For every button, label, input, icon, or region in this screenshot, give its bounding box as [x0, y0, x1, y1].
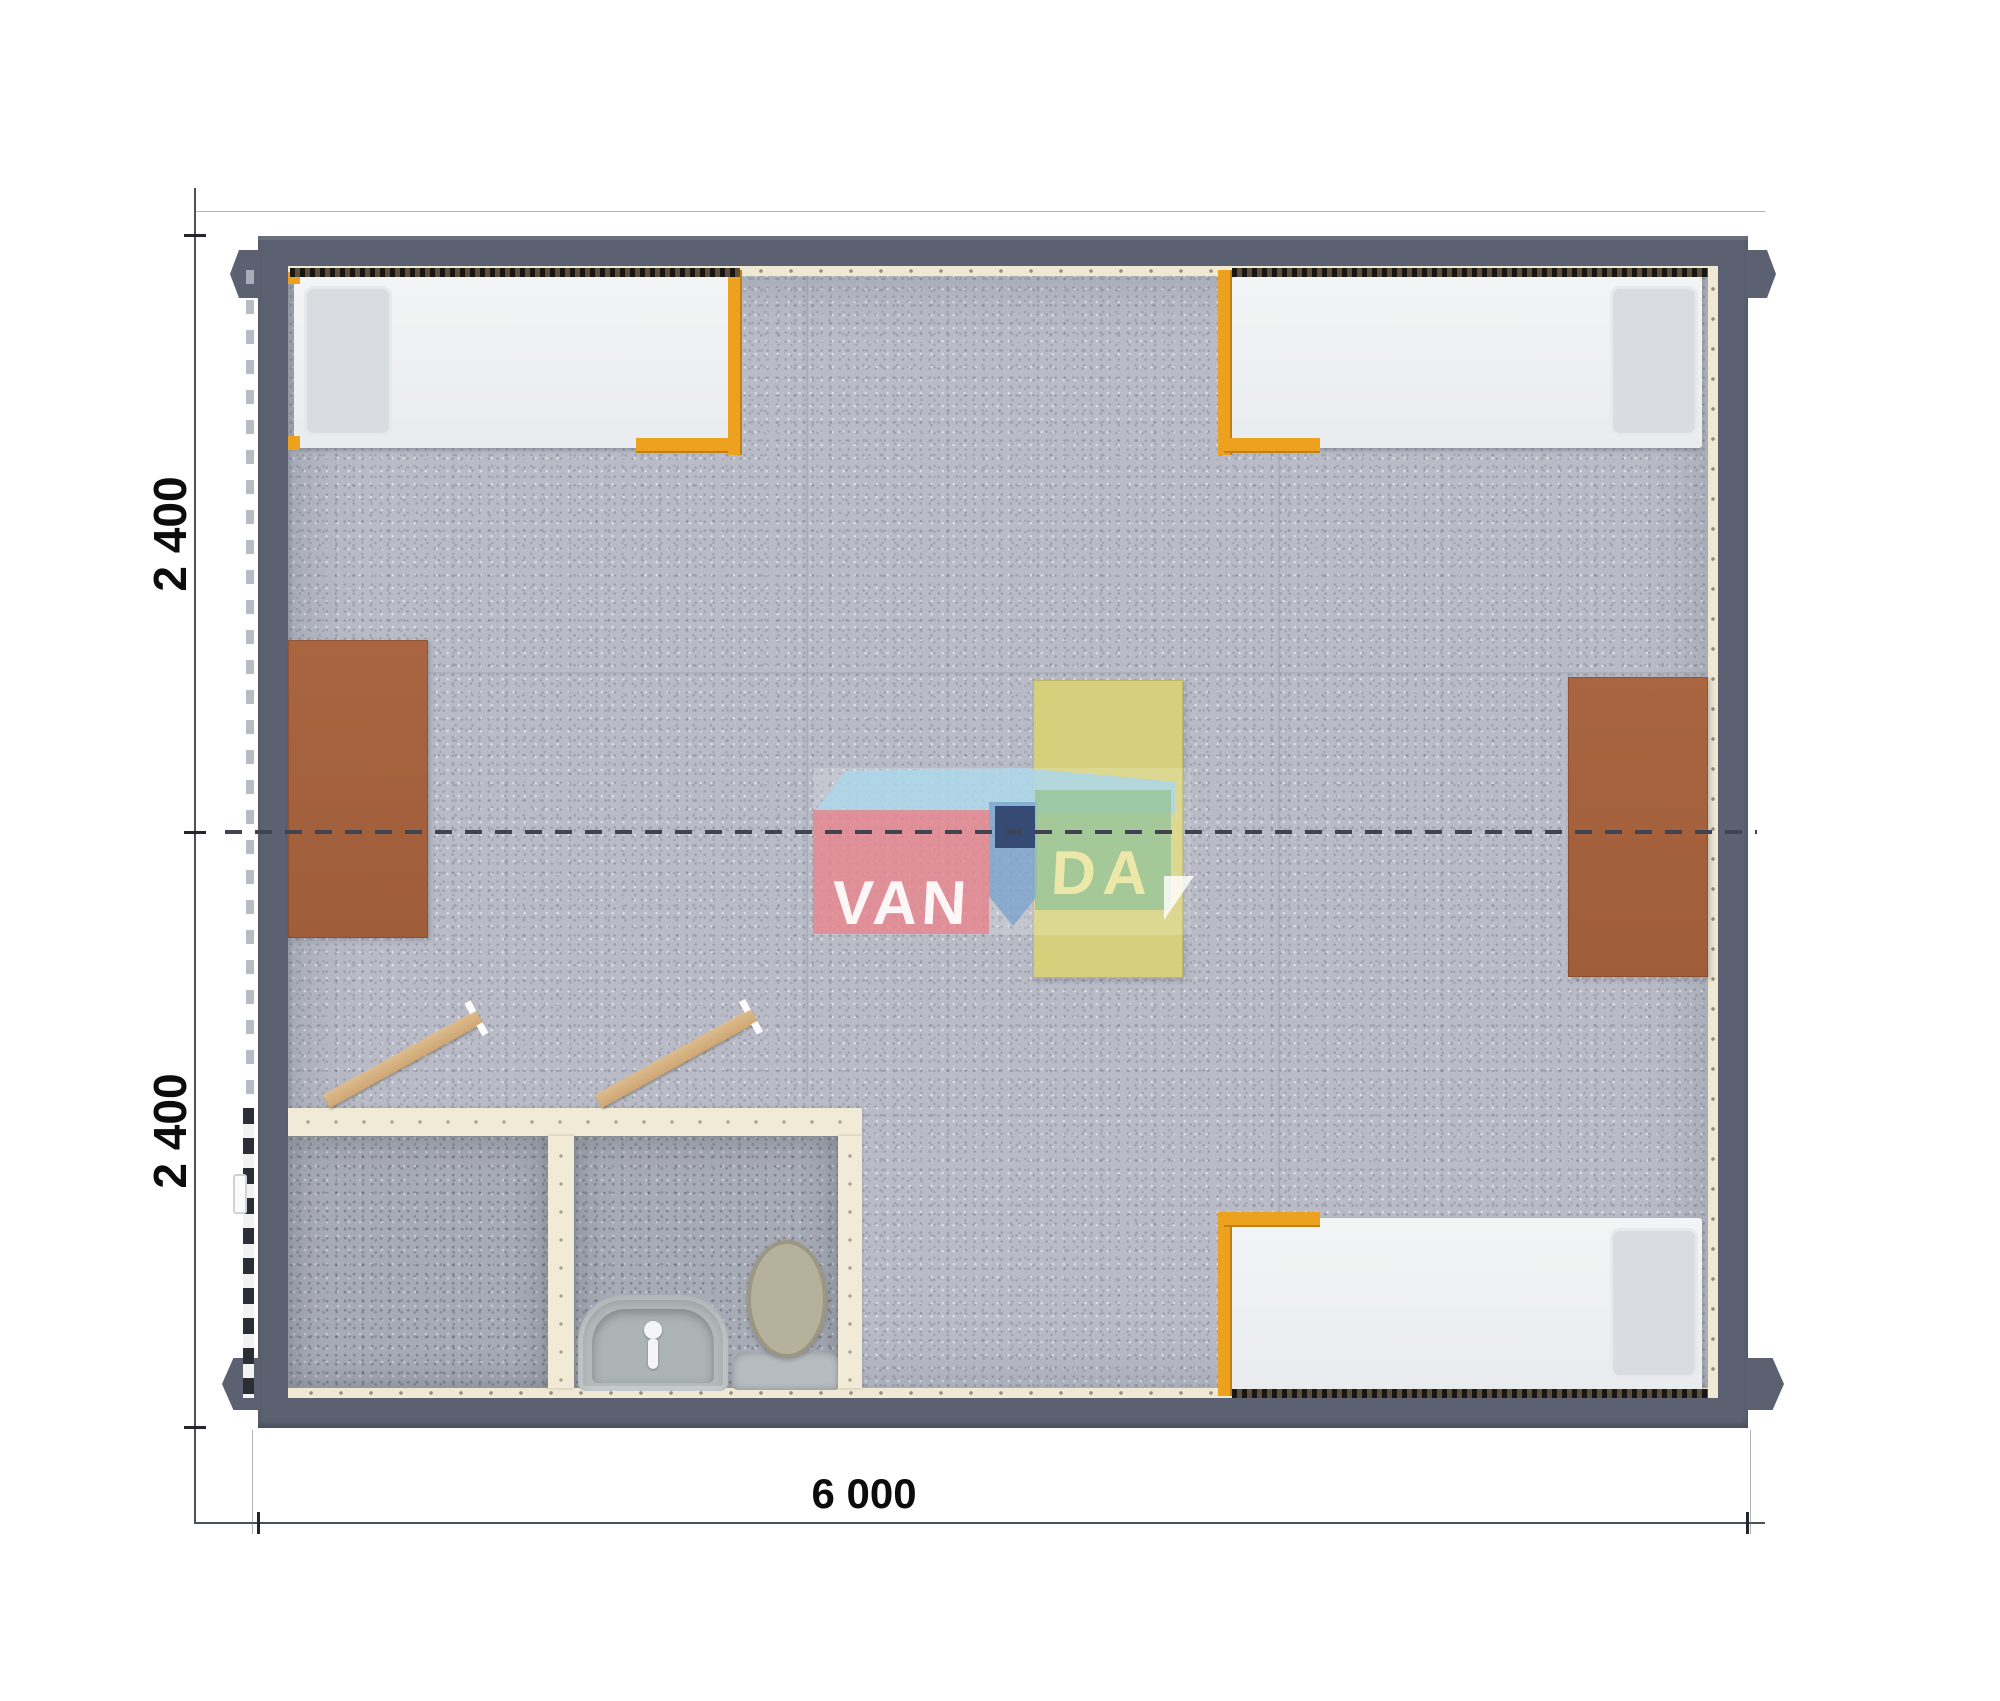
- logo-navy-square: [995, 806, 1035, 848]
- open-door-right-room: [595, 1009, 758, 1108]
- bed-frame-rail: [1218, 1212, 1232, 1396]
- open-door-left-room: [323, 1010, 483, 1108]
- bed-frame-rail: [1218, 270, 1232, 455]
- corner-casting-top-right: [1746, 250, 1776, 298]
- dimension-tick-left: [257, 1512, 260, 1534]
- bed-frame-rail: [728, 270, 742, 455]
- bathroom-divider-wall: [548, 1136, 574, 1388]
- dimension-label-width: 6 000: [811, 1470, 916, 1518]
- exterior-door-handle: [233, 1174, 247, 1214]
- bed-headboard-strip: [290, 268, 740, 277]
- floor-seam: [806, 276, 808, 1096]
- bathroom-left-room-floor: [288, 1136, 548, 1388]
- corner-casting-bottom-left: [222, 1358, 260, 1410]
- bed-top-left: [288, 268, 742, 455]
- bed-footboard: [636, 438, 728, 453]
- dimension-label-height-top: 2 400: [143, 476, 197, 591]
- bed-headboard-strip: [1232, 268, 1708, 277]
- module-split-dashed-line: [225, 830, 1757, 834]
- bed-frame-corner: [288, 436, 300, 450]
- bathroom-side-wall: [838, 1136, 862, 1388]
- faucet-icon: [644, 1321, 662, 1339]
- dimension-tick-bottom: [184, 1426, 206, 1429]
- desk-right: [1568, 677, 1708, 977]
- bed-headboard-strip: [1232, 1389, 1708, 1398]
- logo-text-van: VAN: [830, 875, 971, 934]
- bed-pillow: [1610, 1228, 1698, 1378]
- bed-pillow: [1610, 286, 1698, 436]
- faucet-stem: [648, 1339, 658, 1369]
- sink: [578, 1295, 728, 1391]
- dimension-tick-top: [184, 234, 206, 237]
- bed-bottom-right: [1218, 1212, 1708, 1398]
- wall-panel-seam-dashes: [246, 270, 254, 1108]
- dimension-tick-right: [1746, 1512, 1749, 1534]
- extension-line-bottom-left: [252, 1430, 253, 1534]
- desk-left: [288, 640, 428, 938]
- floor-seam: [288, 672, 1708, 674]
- corner-casting-bottom-right: [1746, 1358, 1784, 1410]
- logo-red-box: VAN: [813, 810, 989, 934]
- dimension-line-vertical: [194, 188, 196, 1524]
- bathroom-partition-wall: [288, 1108, 862, 1136]
- logo-green-box: DA: [1035, 790, 1171, 910]
- dimension-label-height-bottom: 2 400: [143, 1073, 197, 1188]
- dimension-tick-middle: [184, 831, 206, 834]
- extension-line-top: [195, 211, 1765, 212]
- bed-footboard: [1224, 1212, 1320, 1227]
- floor-plan-canvas: 2 400 2 400 6 000: [0, 0, 2000, 1701]
- bed-top-right: [1218, 268, 1708, 455]
- entrance-door-seal-dashes: [243, 1108, 254, 1398]
- dimension-line-horizontal: [195, 1522, 1765, 1524]
- corner-casting-top-left: [230, 250, 260, 298]
- logo-text-da: DA: [1050, 845, 1157, 910]
- vanda-logo: VAN DA: [813, 768, 1193, 936]
- bed-pillow: [304, 286, 392, 436]
- toilet-lid: [747, 1240, 827, 1358]
- extension-line-bottom-right: [1750, 1430, 1751, 1534]
- bed-footboard: [1224, 438, 1320, 453]
